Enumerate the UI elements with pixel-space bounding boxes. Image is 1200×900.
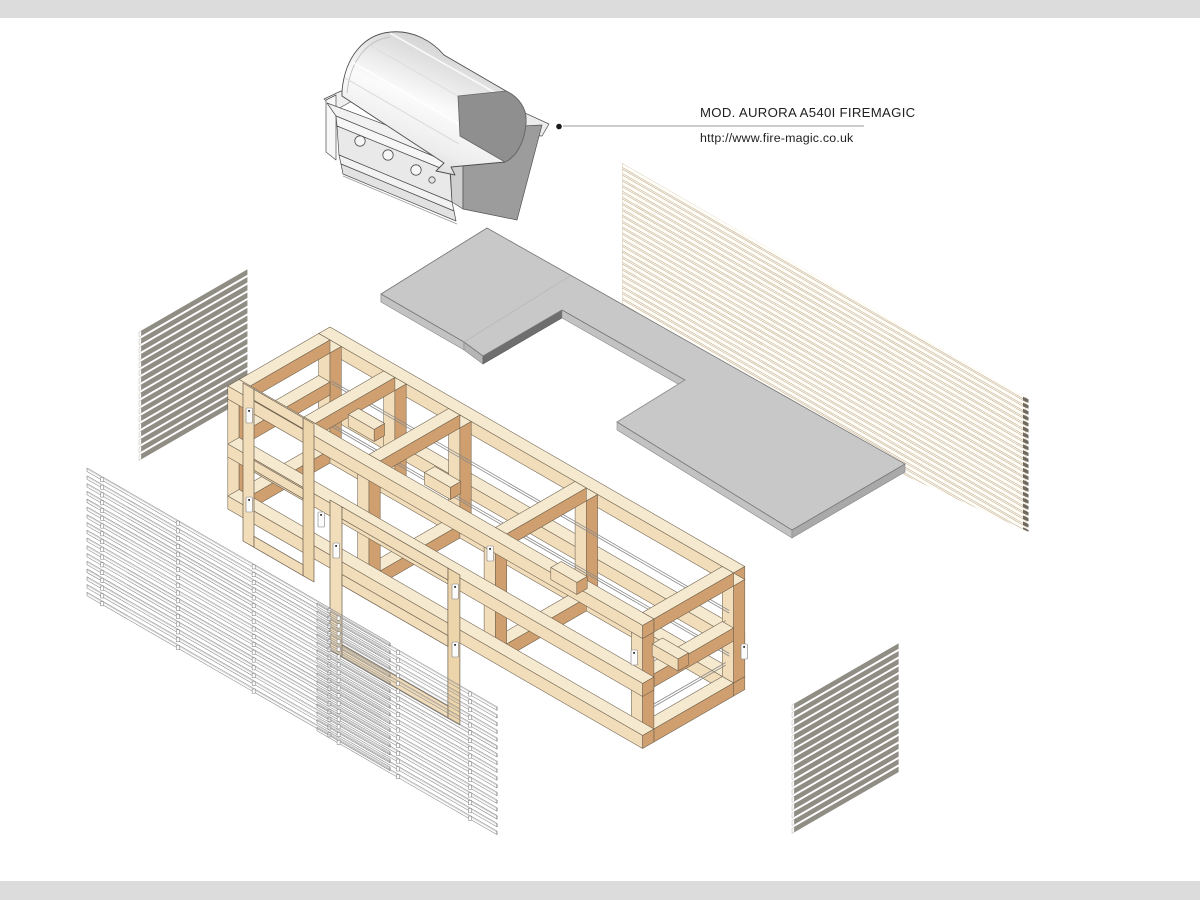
model-label: MOD. AURORA A540I FIREMAGIC: [700, 105, 916, 120]
leader-dot: [556, 124, 562, 130]
grill-knob: [383, 150, 393, 160]
grill-knob: [411, 165, 421, 175]
grill-knob-small: [429, 177, 435, 183]
top-margin-strip: [0, 0, 1200, 18]
grill-illustration: [324, 32, 549, 224]
exploded-assembly-drawing: MOD. AURORA A540I FIREMAGIC http://www.f…: [0, 0, 1200, 900]
right-end-slat-panel: [792, 644, 899, 834]
grill-knob: [355, 136, 365, 146]
annotation: MOD. AURORA A540I FIREMAGIC http://www.f…: [556, 105, 915, 145]
bottom-margin-strip: [0, 881, 1200, 900]
url-label: http://www.fire-magic.co.uk: [700, 131, 854, 145]
